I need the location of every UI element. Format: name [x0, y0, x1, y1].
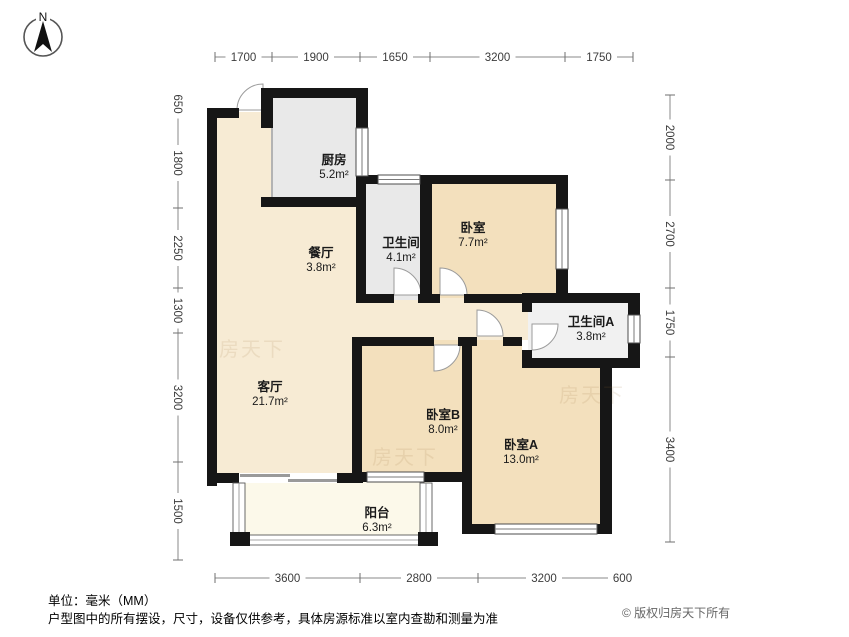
- room-area-bathroom: 4.1m²: [386, 252, 416, 264]
- room-name-kitchen: 厨房: [321, 152, 346, 167]
- room-area-bedroom-a: 13.0m²: [503, 454, 539, 466]
- dim-label-bottom: 2800: [406, 573, 432, 585]
- disclaimer-text: 户型图中的所有摆设，尺寸，设备仅供参考，具体房源标准以室内查勘和测量为准: [48, 608, 498, 627]
- dim-label-left: 1300: [171, 298, 183, 324]
- balcony-sliding-door: [240, 474, 290, 477]
- bedroom-b-window: [367, 472, 424, 482]
- floorplan-drawing: N 房天下房天下房天下 厨房5.2m²卫生间4.1m²卧室7.7m²餐厅3.8m…: [0, 0, 849, 637]
- dim-label-top: 1650: [382, 52, 408, 64]
- dim-label-top: 3200: [485, 52, 511, 64]
- dim-label-left: 2250: [171, 235, 183, 261]
- balcony-sliding-door: [288, 479, 337, 482]
- dim-label-left: 650: [171, 94, 183, 113]
- room-name-bathroom-a: 卫生间A: [568, 314, 615, 329]
- entry-door-arc: [237, 84, 263, 110]
- room-name-bedroom-north: 卧室: [460, 220, 486, 235]
- room-area-bedroom-b: 8.0m²: [428, 424, 458, 436]
- dim-label-right: 1750: [663, 310, 675, 336]
- dim-label-bottom: 3600: [275, 573, 301, 585]
- copyright-text: © 版权归房天下所有: [622, 604, 730, 621]
- dim-label-top: 1700: [231, 52, 257, 64]
- dim-label-left: 3200: [171, 385, 183, 411]
- bathroom-a-window: [628, 315, 640, 343]
- room-name-balcony: 阳台: [364, 505, 389, 520]
- dim-label-top: 1750: [586, 52, 612, 64]
- room-name-bathroom: 卫生间: [382, 235, 420, 250]
- kitchen-window: [356, 128, 368, 176]
- room-name-bedroom-b: 卧室B: [426, 407, 460, 422]
- bedroom-a-window: [495, 524, 597, 534]
- kitchen-opening-line: [271, 128, 273, 197]
- room-area-kitchen: 5.2m²: [319, 169, 349, 181]
- room-area-balcony: 6.3m²: [362, 522, 392, 534]
- watermark-text: 房天下: [559, 384, 625, 407]
- dim-label-left: 1500: [171, 498, 183, 524]
- compass: N: [24, 10, 62, 56]
- room-area-bathroom-a: 3.8m²: [576, 331, 606, 343]
- dim-label-bottom: 600: [613, 573, 632, 585]
- room-name-bedroom-a: 卧室A: [504, 437, 538, 452]
- dim-label-top: 1900: [303, 52, 329, 64]
- dim-label-right: 2000: [663, 125, 675, 151]
- dim-label-left: 1800: [171, 150, 183, 176]
- bedroom-north-window: [556, 209, 568, 269]
- room-name-dining-room: 餐厅: [307, 245, 334, 260]
- bathroom-window: [378, 175, 420, 184]
- room-area-bedroom-north: 7.7m²: [458, 237, 488, 249]
- floorplan-page: N 房天下房天下房天下 厨房5.2m²卫生间4.1m²卧室7.7m²餐厅3.8m…: [0, 0, 849, 637]
- dim-label-right: 3400: [663, 437, 675, 463]
- room-area-living-room: 21.7m²: [252, 396, 288, 408]
- dim-label-bottom: 3200: [531, 573, 557, 585]
- room-name-living-room: 客厅: [256, 379, 283, 394]
- unit-note: 单位：毫米（MM）: [48, 590, 156, 609]
- watermark-text: 房天下: [219, 338, 285, 361]
- watermark-text: 房天下: [372, 446, 438, 469]
- dim-label-right: 2700: [663, 221, 675, 247]
- room-area-dining-room: 3.8m²: [306, 262, 336, 274]
